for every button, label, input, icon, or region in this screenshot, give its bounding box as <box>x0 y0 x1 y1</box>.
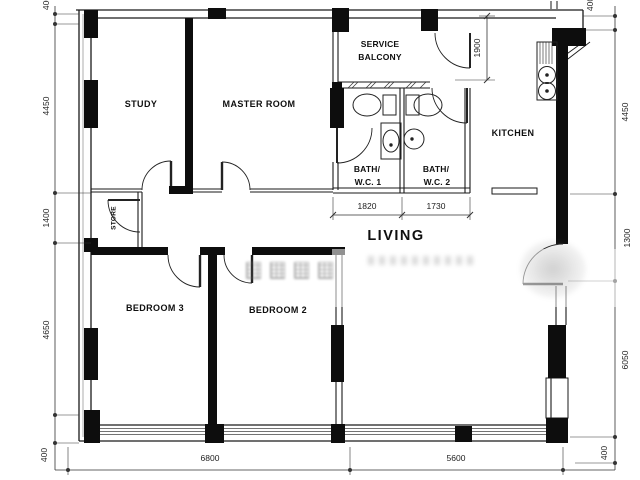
watermark-smear <box>368 256 478 265</box>
dim-right-6050: 6050 <box>620 351 630 370</box>
watermark-glyphs <box>246 258 338 282</box>
room-label-bath2-line1: BATH/ <box>423 164 449 174</box>
floor-plan: STUDY MASTER ROOM SERVICE BALCONY BATH/ … <box>0 0 640 480</box>
dim-left-4650: 4650 <box>41 321 51 340</box>
wall-hatching <box>348 82 426 88</box>
room-label-bath1-line2: W.C. 1 <box>355 177 382 187</box>
dim-right-4450: 4450 <box>620 103 630 122</box>
dim-left-400-top: 400 <box>41 0 51 10</box>
room-label-service-balcony-line2: BALCONY <box>358 52 401 62</box>
dim-bottom-6800: 6800 <box>201 453 220 463</box>
watermark-logo-blob <box>520 240 586 298</box>
room-label-study: STUDY <box>125 99 158 109</box>
dim-bath2-1730: 1730 <box>427 201 446 211</box>
dim-left-1400: 1400 <box>41 209 51 228</box>
dim-right-400-bottom: 400 <box>599 446 609 460</box>
kitchen-stove <box>537 42 557 100</box>
dim-balcony-1900: 1900 <box>472 39 482 58</box>
room-label-bath1-line1: BATH/ <box>354 164 380 174</box>
room-label-store: STORE <box>111 206 118 230</box>
dim-right-400-top: 400 <box>585 0 595 11</box>
room-label-bedroom-3: BEDROOM 3 <box>126 303 184 313</box>
room-label-master-room: MASTER ROOM <box>223 99 296 109</box>
dim-bottom-5600: 5600 <box>447 453 466 463</box>
room-label-living: LIVING <box>367 228 424 244</box>
bathroom-fixtures <box>353 94 442 159</box>
window-lines <box>96 429 546 435</box>
room-label-bedroom-2: BEDROOM 2 <box>249 305 307 315</box>
room-label-kitchen: KITCHEN <box>492 128 535 138</box>
room-label-service-balcony-line1: SERVICE <box>361 39 400 49</box>
dim-bath1-1820: 1820 <box>358 201 377 211</box>
wall-columns <box>84 8 586 443</box>
room-label-bath2-line2: W.C. 2 <box>424 177 451 187</box>
interior-walls <box>91 18 568 425</box>
dim-left-400-bottom: 400 <box>39 448 49 462</box>
dim-left-4450: 4450 <box>41 97 51 116</box>
dim-right-1300: 1300 <box>622 229 632 248</box>
